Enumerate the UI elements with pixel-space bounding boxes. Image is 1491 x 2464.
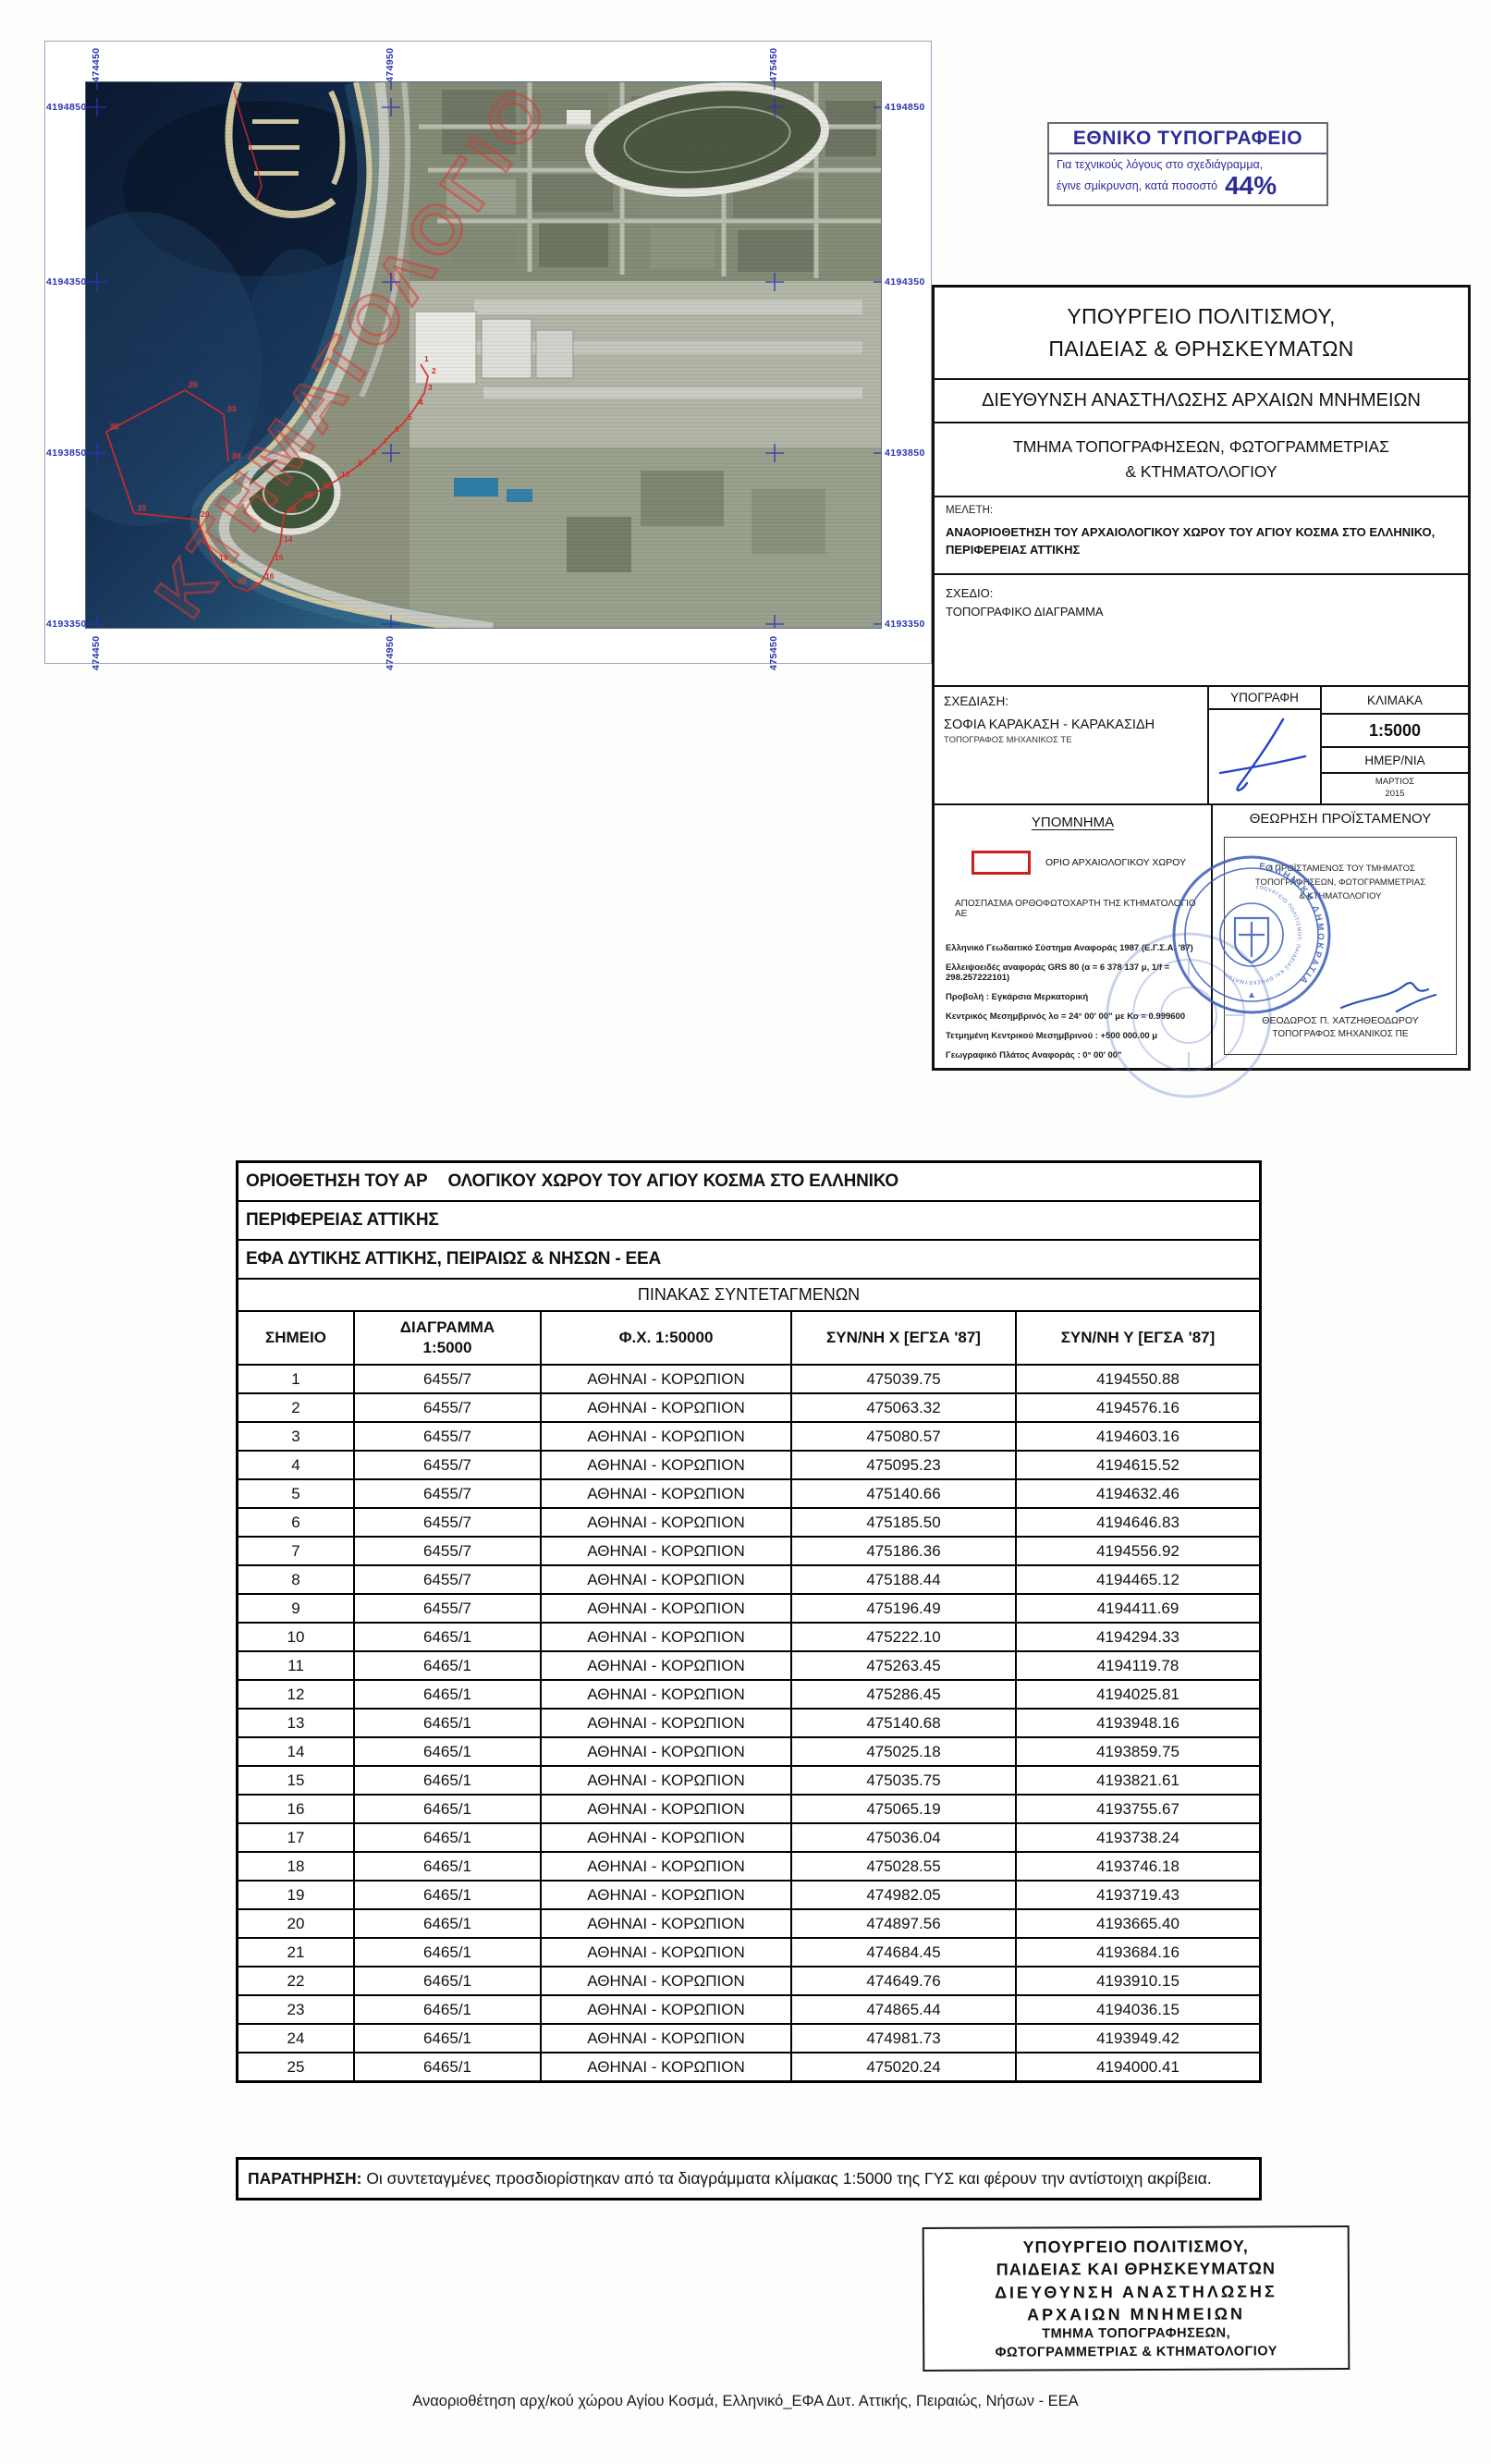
- date-year: 2015: [1385, 789, 1404, 801]
- vertex-labels: 1234567891011121314151617181920212223242…: [86, 82, 881, 628]
- orthophoto-map: ΚΤΗΜΑΤΟΛΟΓΙΟ 123456789101112131415161718…: [86, 82, 881, 628]
- national-printing-office-box: ΕΘΝΙΚΟ ΤΥΠΟΓΡΑΦΕΙΟ Για τεχνικούς λόγους …: [1047, 122, 1328, 206]
- table-cell: 4194000.41: [1017, 2052, 1259, 2080]
- table-cell-point: 22: [238, 1966, 355, 1994]
- table-cell: 475186.36: [792, 1536, 1017, 1564]
- table-cell: ΑΘΗΝΑΙ - ΚΟΡΩΠΙΟΝ: [542, 1650, 792, 1679]
- table-cell: 475095.23: [792, 1450, 1017, 1478]
- table-cell-point: 13: [238, 1708, 355, 1736]
- approver-head-line1: Ο ΠΡΟΪΣΤΑΜΕΝΟΣ ΤΟΥ ΤΜΗΜΑΤΟΣ: [1255, 862, 1425, 876]
- vertex-label: 24: [232, 451, 240, 460]
- table-cell: 4193910.15: [1017, 1966, 1259, 1994]
- geodetic-note-line: Τετμημένη Κεντρικού Μεσημβρινού : +500 0…: [946, 1031, 1200, 1041]
- signature-mark: [1209, 710, 1320, 799]
- table-cell-point: 7: [238, 1536, 355, 1564]
- table-cell-point: 15: [238, 1765, 355, 1794]
- grid-x-label-top: 474950: [385, 42, 396, 82]
- signature-cell: ΥΠΟΓΡΑΦΗ: [1207, 687, 1320, 803]
- table-cell: ΑΘΗΝΑΙ - ΚΟΡΩΠΙΟΝ: [542, 1364, 792, 1392]
- geodetic-notes: Ελληνικό Γεωδαιτικό Σύστημα Αναφοράς 198…: [946, 943, 1200, 1060]
- table-cell: ΑΘΗΝΑΙ - ΚΟΡΩΠΙΟΝ: [542, 1450, 792, 1478]
- table-cell: ΑΘΗΝΑΙ - ΚΟΡΩΠΙΟΝ: [542, 1392, 792, 1421]
- column-header: ΔΙΑΓΡΑΜΜΑ 1:5000: [355, 1312, 542, 1364]
- table-cell: ΑΘΗΝΑΙ - ΚΟΡΩΠΙΟΝ: [542, 1736, 792, 1765]
- table-header-line3: ΕΦΑ ΔΥΤΙΚΗΣ ΑΤΤΙΚΗΣ, ΠΕΙΡΑΙΩΣ & ΝΗΣΩΝ - …: [238, 1241, 1259, 1280]
- table-cell-point: 2: [238, 1392, 355, 1421]
- stamp-line: ΥΠΟΥΡΓΕΙΟ ΠΟΛΙΤΙΣΜΟΥ,: [930, 2235, 1342, 2259]
- table-cell: ΑΘΗΝΑΙ - ΚΟΡΩΠΙΟΝ: [542, 1421, 792, 1450]
- table-cell: ΑΘΗΝΑΙ - ΚΟΡΩΠΙΟΝ: [542, 1937, 792, 1966]
- table-cell: 475286.45: [792, 1679, 1017, 1708]
- date-value: ΜΑΡΤΙΟΣ 2015: [1322, 774, 1468, 803]
- scale-date-cell: ΚΛΙΜΑΚΑ 1:5000 ΗΜΕΡ/ΝΙΑ ΜΑΡΤΙΟΣ 2015: [1320, 687, 1468, 803]
- table-cell: 4194294.33: [1017, 1622, 1259, 1650]
- table-cell: ΑΘΗΝΑΙ - ΚΟΡΩΠΙΟΝ: [542, 1908, 792, 1937]
- table-cell: 4194576.16: [1017, 1392, 1259, 1421]
- table-cell: 6465/1: [355, 2023, 542, 2052]
- table-cell: 6455/7: [355, 1593, 542, 1622]
- table-cell-point: 9: [238, 1593, 355, 1622]
- table-cell: 6455/7: [355, 1507, 542, 1536]
- table-cell-point: 8: [238, 1564, 355, 1593]
- table-cell: ΑΘΗΝΑΙ - ΚΟΡΩΠΙΟΝ: [542, 1794, 792, 1822]
- geodetic-note-line: Ελληνικό Γεωδαιτικό Σύστημα Αναφοράς 198…: [946, 943, 1200, 953]
- remark-box: ΠΑΡΑΤΗΡΗΣΗ: Οι συντεταγμένες προσδιορίστ…: [236, 2157, 1262, 2200]
- stamp-line: ΠΑΙΔΕΙΑΣ ΚΑΙ ΘΡΗΣΚΕΥΜΑΤΩΝ: [930, 2257, 1342, 2281]
- table-cell: ΑΘΗΝΑΙ - ΚΟΡΩΠΙΟΝ: [542, 1507, 792, 1536]
- approver-head-line3: & ΚΤΗΜΑΤΟΛΟΓΙΟΥ: [1255, 889, 1425, 903]
- approval-box: Ο ΠΡΟΪΣΤΑΜΕΝΟΣ ΤΟΥ ΤΜΗΜΑΤΟΣ ΤΟΠΟΓΡΑΦΗΣΕΩ…: [1224, 837, 1457, 1055]
- table-header-line2: ΠΕΡΙΦΕΡΕΙΑΣ ΑΤΤΙΚΗΣ: [238, 1202, 1259, 1241]
- table-cell: 4193738.24: [1017, 1822, 1259, 1851]
- vertex-label: 3: [428, 383, 433, 392]
- stamp-line: ΑΡΧΑΙΩΝ ΜΝΗΜΕΙΩΝ: [930, 2302, 1342, 2326]
- table-cell-point: 6: [238, 1507, 355, 1536]
- grid-y-label-left: 4193850: [46, 447, 85, 459]
- grid-y-label-right: 4194350: [885, 276, 929, 288]
- vertex-label: 11: [323, 481, 331, 490]
- legend-title: ΥΠΟΜΝΗΜΑ: [946, 815, 1200, 830]
- approver-signature: [1332, 971, 1443, 1015]
- stamp-line: ΔΙΕΥΘΥΝΣΗ ΑΝΑΣΤΗΛΩΣΗΣ: [930, 2280, 1342, 2304]
- table-cell: 475063.32: [792, 1392, 1017, 1421]
- table-cell-point: 18: [238, 1851, 355, 1880]
- table-cell-point: 16: [238, 1794, 355, 1822]
- vertex-label: 5: [408, 412, 412, 422]
- table-cell: 4194465.12: [1017, 1564, 1259, 1593]
- geodetic-note-line: Προβολή : Εγκάρσια Μερκατορική: [946, 992, 1200, 1002]
- geodetic-note-line: Γεωγραφικό Πλάτος Αναφοράς : 0° 00' 00": [946, 1050, 1200, 1060]
- orthophoto-source-note: ΑΠΟΣΠΑΣΜΑ ΟΡΘΟΦΩΤΟΧΑΡΤΗ ΤΗΣ ΚΤΗΜΑΤΟΛΟΓΙΟ…: [955, 899, 1200, 919]
- table-cell: 6465/1: [355, 1650, 542, 1679]
- table-cell: ΑΘΗΝΑΙ - ΚΟΡΩΠΙΟΝ: [542, 1679, 792, 1708]
- grid-y-label-right: 4193850: [885, 447, 929, 459]
- column-header: ΣΥΝ/ΝΗ Υ [ΕΓΣΑ '87]: [1017, 1312, 1259, 1364]
- vertex-label: 14: [284, 534, 292, 544]
- table-cell: ΑΘΗΝΑΙ - ΚΟΡΩΠΙΟΝ: [542, 1765, 792, 1794]
- file-caption: Αναοριοθέτηση αρχ/κού χώρου Αγίου Κοσμά,…: [0, 2393, 1491, 2410]
- table-cell: 4194550.88: [1017, 1364, 1259, 1392]
- vertex-label: 22: [110, 422, 118, 431]
- table-cell: 475020.24: [792, 2052, 1017, 2080]
- vertex-label: 18: [238, 576, 246, 585]
- region-label: ΠΕΡΙΦΕΡΕΙΑΣ ΑΤΤΙΚΗΣ: [246, 1210, 439, 1231]
- table-header-line1: ΟΡΙΟΘΕΤΗΣΗ ΤΟΥ ΑΡ ΟΛΟΓΙΚΟΥ ΧΩΡΟΥ ΤΟΥ ΑΓΙ…: [238, 1163, 1259, 1202]
- table-cell: 475035.75: [792, 1765, 1017, 1794]
- approval-section: ΘΕΩΡΗΣΗ ΠΡΟΪΣΤΑΜΕΝΟΥ Ο ΠΡΟΪΣΤΑΜΕΝΟΣ ΤΟΥ …: [1211, 805, 1468, 1068]
- table-cell: 6465/1: [355, 2052, 542, 2080]
- grid-y-label-left: 4194350: [46, 276, 85, 288]
- approver-head-line2: ΤΟΠΟΓΡΑΦΗΣΕΩΝ, ΦΩΤΟΓΡΑΜΜΕΤΡΙΑΣ: [1255, 876, 1425, 889]
- vertex-label: 15: [275, 553, 283, 562]
- table-cell: 6465/1: [355, 1708, 542, 1736]
- vertex-label: 4: [419, 398, 423, 407]
- table-cell: 474684.45: [792, 1937, 1017, 1966]
- date-month: ΜΑΡΤΙΟΣ: [1375, 777, 1414, 789]
- table-cell: 4194411.69: [1017, 1593, 1259, 1622]
- table-cell: 6455/7: [355, 1536, 542, 1564]
- table-cell-point: 14: [238, 1736, 355, 1765]
- grid-x-label-top: 475450: [768, 42, 779, 82]
- table-cell: ΑΘΗΝΑΙ - ΚΟΡΩΠΙΟΝ: [542, 2052, 792, 2080]
- table-cell: 4194036.15: [1017, 1994, 1259, 2023]
- table-cell: 475065.19: [792, 1794, 1017, 1822]
- table-cell: 474981.73: [792, 2023, 1017, 2052]
- vertex-label: 21: [138, 503, 146, 512]
- vertex-label: 19: [219, 553, 227, 562]
- boundary-legend-swatch: [972, 851, 1031, 875]
- table-cell: 4193859.75: [1017, 1736, 1259, 1765]
- table-header-line1a: ΟΡΙΟΘΕΤΗΣΗ ΤΟΥ ΑΡ: [246, 1171, 427, 1192]
- approver-name: ΘΕΟΔΩΡΟΣ Π. ΧΑΤΖΗΘΕΟΔΩΡΟΥ: [1262, 1015, 1418, 1026]
- stamp-line: ΦΩΤΟΓΡΑΜΜΕΤΡΙΑΣ & ΚΤΗΜΑΤΟΛΟΓΙΟΥ: [930, 2343, 1342, 2363]
- grid-y-label-right: 4193350: [885, 619, 929, 630]
- drawing-section: ΣΧΕΔΙΟ: ΤΟΠΟΓΡΑΦΙΚΟ ΔΙΑΓΡΑΜΜΑ: [935, 575, 1468, 687]
- scale-value: 1:5000: [1322, 715, 1468, 748]
- approval-title: ΘΕΩΡΗΣΗ ΠΡΟΪΣΤΑΜΕΝΟΥ: [1213, 811, 1468, 827]
- vertex-label: 16: [265, 571, 274, 581]
- table-cell: ΑΘΗΝΑΙ - ΚΟΡΩΠΙΟΝ: [542, 1851, 792, 1880]
- table-cell-point: 1: [238, 1364, 355, 1392]
- study-text: ΑΝΑΟΡΙΟΘΕΤΗΣΗ ΤΟΥ ΑΡΧΑΙΟΛΟΓΙΚΟΥ ΧΩΡΟΥ ΤΟ…: [946, 523, 1457, 559]
- vertex-label: 9: [358, 459, 362, 468]
- vertex-label: 25: [189, 380, 197, 389]
- ministry-line2: ΠΑΙΔΕΙΑΣ & ΘΡΗΣΚΕΥΜΑΤΩΝ: [935, 333, 1468, 365]
- table-cell: 6465/1: [355, 1994, 542, 2023]
- table-cell: 6465/1: [355, 1794, 542, 1822]
- document-page: ΚΤΗΜΑΤΟΛΟΓΙΟ 123456789101112131415161718…: [0, 0, 1491, 2464]
- grid-x-label-bottom: 474450: [91, 630, 102, 670]
- directorate-title: ΔΙΕΥΘΥΝΣΗ ΑΝΑΣΤΗΛΩΣΗΣ ΑΡΧΑΙΩΝ ΜΝΗΜΕΙΩΝ: [982, 390, 1421, 411]
- table-cell: 4193755.67: [1017, 1794, 1259, 1822]
- coordinates-grid: ΣΗΜΕΙΟΔΙΑΓΡΑΜΜΑ 1:5000Φ.Χ. 1:50000ΣΥΝ/ΝΗ…: [238, 1312, 1259, 2080]
- table-cell: 6465/1: [355, 1679, 542, 1708]
- vertex-label: 1: [424, 354, 429, 363]
- table-subtitle: ΠΙΝΑΚΑΣ ΣΥΝΤΕΤΑΓΜΕΝΩΝ: [238, 1280, 1259, 1312]
- table-cell: 475080.57: [792, 1421, 1017, 1450]
- designer-title: ΤΟΠΟΓΡΑΦΟΣ ΜΗΧΑΝΙΚΟΣ ΤΕ: [944, 735, 1198, 745]
- designer-name: ΣΟΦΙΑ ΚΑΡΑΚΑΣΗ - ΚΑΡΑΚΑΣΙΔΗ: [944, 717, 1198, 732]
- grid-y-label-right: 4194850: [885, 102, 929, 113]
- table-cell: 475263.45: [792, 1650, 1017, 1679]
- ministry-line1: ΥΠΟΥΡΓΕΙΟ ΠΟΛΙΤΙΣΜΟΥ,: [935, 300, 1468, 333]
- printer-note-line2: έγινε σμίκρυνση, κατά ποσοστό: [1057, 179, 1217, 192]
- table-cell: ΑΘΗΝΑΙ - ΚΟΡΩΠΙΟΝ: [542, 1536, 792, 1564]
- table-cell: 4194556.92: [1017, 1536, 1259, 1564]
- table-cell: 475140.68: [792, 1708, 1017, 1736]
- date-label: ΗΜΕΡ/ΝΙΑ: [1322, 748, 1468, 774]
- table-cell: ΑΘΗΝΑΙ - ΚΟΡΩΠΙΟΝ: [542, 2023, 792, 2052]
- table-cell: ΑΘΗΝΑΙ - ΚΟΡΩΠΙΟΝ: [542, 1994, 792, 2023]
- table-cell: 6455/7: [355, 1564, 542, 1593]
- table-cell: 4193719.43: [1017, 1880, 1259, 1908]
- table-cell: 6455/7: [355, 1392, 542, 1421]
- table-cell: 4193948.16: [1017, 1708, 1259, 1736]
- directorate-section: ΔΙΕΥΘΥΝΣΗ ΑΝΑΣΤΗΛΩΣΗΣ ΑΡΧΑΙΩΝ ΜΝΗΜΕΙΩΝ: [935, 380, 1468, 424]
- approver-title: ΤΟΠΟΓΡΑΦΟΣ ΜΗΧΑΝΙΚΟΣ ΠΕ: [1272, 1029, 1408, 1039]
- geodetic-note-line: Ελλειψοειδές αναφοράς GRS 80 (α = 6 378 …: [946, 962, 1200, 983]
- remark-text: Οι συντεταγμένες προσδιορίστηκαν από τα …: [361, 2169, 1211, 2188]
- table-cell: 6465/1: [355, 1765, 542, 1794]
- table-cell: 6455/7: [355, 1478, 542, 1507]
- table-cell-point: 24: [238, 2023, 355, 2052]
- design-label: ΣΧΕΔΙΑΣΗ:: [944, 694, 1198, 708]
- table-cell: 475140.66: [792, 1478, 1017, 1507]
- grid-y-label-left: 4193350: [46, 619, 85, 630]
- table-cell: 6455/7: [355, 1450, 542, 1478]
- drawing-text: ΤΟΠΟΓΡΑΦΙΚΟ ΔΙΑΓΡΑΜΜΑ: [946, 603, 1457, 622]
- table-cell: ΑΘΗΝΑΙ - ΚΟΡΩΠΙΟΝ: [542, 1478, 792, 1507]
- coordinates-table: ΟΡΙΟΘΕΤΗΣΗ ΤΟΥ ΑΡ ΟΛΟΓΙΚΟΥ ΧΩΡΟΥ ΤΟΥ ΑΓΙ…: [236, 1160, 1262, 2083]
- table-cell: 475188.44: [792, 1564, 1017, 1593]
- vertex-label: 10: [341, 470, 349, 479]
- table-cell: 474649.76: [792, 1966, 1017, 1994]
- table-cell: ΑΘΗΝΑΙ - ΚΟΡΩΠΙΟΝ: [542, 1966, 792, 1994]
- legend-section: ΥΠΟΜΝΗΜΑ ΟΡΙΟ ΑΡΧΑΙΟΛΟΓΙΚΟΥ ΧΩΡΟΥ ΑΠΟΣΠΑ…: [935, 805, 1211, 1068]
- table-cell-point: 12: [238, 1679, 355, 1708]
- table-cell: ΑΘΗΝΑΙ - ΚΟΡΩΠΙΟΝ: [542, 1880, 792, 1908]
- study-label: ΜΕΛΕΤΗ:: [946, 505, 1457, 516]
- table-cell-point: 21: [238, 1937, 355, 1966]
- table-cell-point: 19: [238, 1880, 355, 1908]
- table-cell: 475196.49: [792, 1593, 1017, 1622]
- table-cell: ΑΘΗΝΑΙ - ΚΟΡΩΠΙΟΝ: [542, 1622, 792, 1650]
- table-cell: 6465/1: [355, 1622, 542, 1650]
- table-cell: 6465/1: [355, 1822, 542, 1851]
- printer-note-line1: Για τεχνικούς λόγους στο σχεδιάγραμμα,: [1049, 154, 1326, 171]
- table-cell: ΑΘΗΝΑΙ - ΚΟΡΩΠΙΟΝ: [542, 1564, 792, 1593]
- signature-label: ΥΠΟΓΡΑΦΗ: [1209, 687, 1320, 710]
- table-cell-point: 10: [238, 1622, 355, 1650]
- vertex-label: 17: [251, 581, 260, 590]
- grid-y-label-left: 4194850: [46, 102, 85, 113]
- vertex-label: 20: [201, 509, 209, 519]
- ephorate-label: ΕΦΑ ΔΥΤΙΚΗΣ ΑΤΤΙΚΗΣ, ΠΕΙΡΑΙΩΣ & ΝΗΣΩΝ - …: [246, 1249, 661, 1269]
- table-cell: 4194646.83: [1017, 1507, 1259, 1536]
- table-cell: 4193746.18: [1017, 1851, 1259, 1880]
- ministry-section: ΥΠΟΥΡΓΕΙΟ ΠΟΛΙΤΙΣΜΟΥ, ΠΑΙΔΕΙΑΣ & ΘΡΗΣΚΕΥ…: [935, 288, 1468, 380]
- map-panel: ΚΤΗΜΑΤΟΛΟΓΙΟ 123456789101112131415161718…: [44, 41, 932, 664]
- table-cell: 475185.50: [792, 1507, 1017, 1536]
- department-section: ΤΜΗΜΑ ΤΟΠΟΓΡΑΦΗΣΕΩΝ, ΦΩΤΟΓΡΑΜΜΕΤΡΙΑΣ & Κ…: [935, 423, 1468, 497]
- vertex-label: 8: [372, 447, 376, 457]
- reduction-percent: 44%: [1225, 171, 1277, 201]
- table-cell: 475222.10: [792, 1622, 1017, 1650]
- title-block: ΥΠΟΥΡΓΕΙΟ ΠΟΛΙΤΙΣΜΟΥ, ΠΑΙΔΕΙΑΣ & ΘΡΗΣΚΕΥ…: [932, 285, 1471, 1071]
- department-line1: ΤΜΗΜΑ ΤΟΠΟΓΡΑΦΗΣΕΩΝ, ΦΩΤΟΓΡΑΜΜΕΤΡΙΑΣ: [935, 435, 1468, 460]
- grid-x-label-bottom: 474950: [385, 630, 396, 670]
- subtitle-text: ΠΙΝΑΚΑΣ ΣΥΝΤΕΤΑΓΜΕΝΩΝ: [638, 1285, 860, 1305]
- vertex-label: 12: [304, 490, 312, 499]
- table-cell: 6465/1: [355, 1937, 542, 1966]
- column-header: ΣΗΜΕΙΟ: [238, 1312, 355, 1364]
- vertex-label: 7: [384, 436, 388, 446]
- table-cell: 6465/1: [355, 1851, 542, 1880]
- table-cell: 6465/1: [355, 1908, 542, 1937]
- boundary-legend-label: ΟΡΙΟ ΑΡΧΑΙΟΛΟΓΙΚΟΥ ΧΩΡΟΥ: [1045, 857, 1186, 868]
- table-cell: 475028.55: [792, 1851, 1017, 1880]
- vertex-label: 2: [432, 366, 436, 375]
- vertex-label: 6: [395, 424, 399, 434]
- table-cell-point: 4: [238, 1450, 355, 1478]
- table-cell: 4194025.81: [1017, 1679, 1259, 1708]
- design-row: ΣΧΕΔΙΑΣΗ: ΣΟΦΙΑ ΚΑΡΑΚΑΣΗ - ΚΑΡΑΚΑΣΙΔΗ ΤΟ…: [935, 687, 1468, 805]
- table-cell: ΑΘΗΝΑΙ - ΚΟΡΩΠΙΟΝ: [542, 1593, 792, 1622]
- table-cell: ΑΘΗΝΑΙ - ΚΟΡΩΠΙΟΝ: [542, 1822, 792, 1851]
- table-cell: 4194119.78: [1017, 1650, 1259, 1679]
- table-cell-point: 20: [238, 1908, 355, 1937]
- stamp-line: ΤΜΗΜΑ ΤΟΠΟΓΡΑΦΗΣΕΩΝ,: [930, 2324, 1342, 2345]
- geodetic-note-line: Κεντρικός Μεσημβρινός λο = 24° 00' 00" μ…: [946, 1011, 1200, 1022]
- table-cell: 4194615.52: [1017, 1450, 1259, 1478]
- printer-title: ΕΘΝΙΚΟ ΤΥΠΟΓΡΑΦΕΙΟ: [1049, 124, 1326, 154]
- legend-approval-row: ΥΠΟΜΝΗΜΑ ΟΡΙΟ ΑΡΧΑΙΟΛΟΓΙΚΟΥ ΧΩΡΟΥ ΑΠΟΣΠΑ…: [935, 805, 1468, 1068]
- study-section: ΜΕΛΕΤΗ: ΑΝΑΟΡΙΟΘΕΤΗΣΗ ΤΟΥ ΑΡΧΑΙΟΛΟΓΙΚΟΥ …: [935, 497, 1468, 575]
- table-header-line1b: ΟΛΟΓΙΚΟΥ ΧΩΡΟΥ ΤΟΥ ΑΓΙΟΥ ΚΟΣΜΑ ΣΤΟ ΕΛΛΗΝ…: [447, 1171, 898, 1192]
- table-cell: 474897.56: [792, 1908, 1017, 1937]
- table-cell: 6455/7: [355, 1421, 542, 1450]
- table-cell: 4193665.40: [1017, 1908, 1259, 1937]
- grid-x-label-top: 474450: [91, 42, 102, 82]
- remark-label: ΠΑΡΑΤΗΡΗΣΗ:: [248, 2169, 361, 2188]
- table-cell: 4193949.42: [1017, 2023, 1259, 2052]
- table-cell: 474865.44: [792, 1994, 1017, 2023]
- department-stamp-box: ΥΠΟΥΡΓΕΙΟ ΠΟΛΙΤΙΣΜΟΥ,ΠΑΙΔΕΙΑΣ ΚΑΙ ΘΡΗΣΚΕ…: [923, 2225, 1350, 2372]
- vertex-label: 13: [287, 505, 296, 514]
- table-cell: 4194603.16: [1017, 1421, 1259, 1450]
- table-cell-point: 3: [238, 1421, 355, 1450]
- table-cell: 475036.04: [792, 1822, 1017, 1851]
- table-cell-point: 5: [238, 1478, 355, 1507]
- table-cell: 6465/1: [355, 1736, 542, 1765]
- table-cell: 6455/7: [355, 1364, 542, 1392]
- scale-label: ΚΛΙΜΑΚΑ: [1322, 687, 1468, 715]
- department-line2: & ΚΤΗΜΑΤΟΛΟΓΙΟΥ: [935, 460, 1468, 484]
- table-cell: 475025.18: [792, 1736, 1017, 1765]
- table-cell-point: 11: [238, 1650, 355, 1679]
- drawing-label: ΣΧΕΔΙΟ:: [946, 584, 1457, 604]
- column-header: Φ.Χ. 1:50000: [542, 1312, 792, 1364]
- table-cell-point: 25: [238, 2052, 355, 2080]
- table-cell-point: 17: [238, 1822, 355, 1851]
- column-header: ΣΥΝ/ΝΗ X [ΕΓΣΑ '87]: [792, 1312, 1017, 1364]
- table-cell: 6465/1: [355, 1966, 542, 1994]
- table-cell: 475039.75: [792, 1364, 1017, 1392]
- grid-x-label-bottom: 475450: [768, 630, 779, 670]
- table-cell: 4193821.61: [1017, 1765, 1259, 1794]
- table-cell: 4193684.16: [1017, 1937, 1259, 1966]
- table-cell: ΑΘΗΝΑΙ - ΚΟΡΩΠΙΟΝ: [542, 1708, 792, 1736]
- vertex-label: 23: [227, 404, 236, 413]
- table-cell: 6465/1: [355, 1880, 542, 1908]
- table-cell-point: 23: [238, 1994, 355, 2023]
- table-cell: 474982.05: [792, 1880, 1017, 1908]
- table-cell: 4194632.46: [1017, 1478, 1259, 1507]
